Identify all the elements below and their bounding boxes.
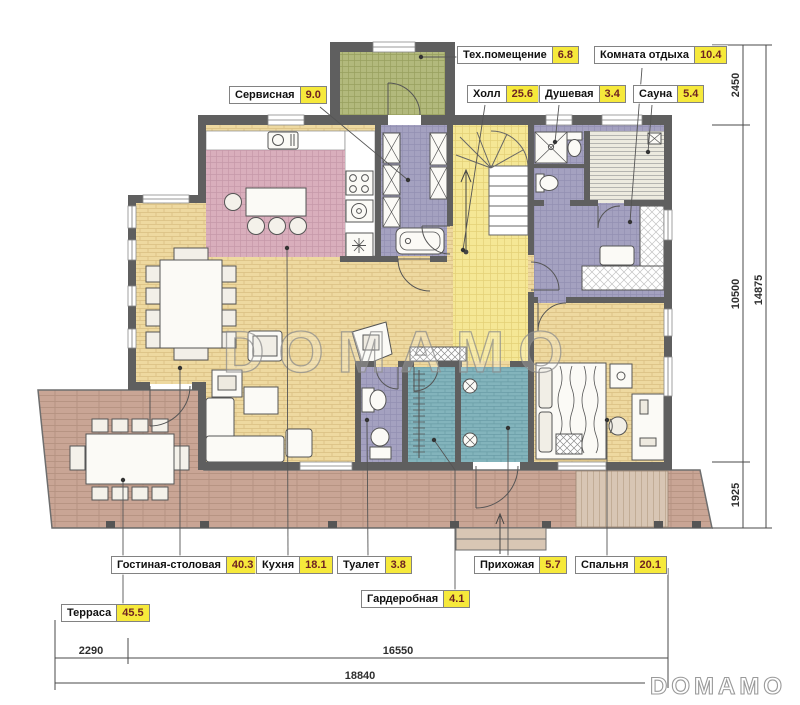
room-area: 6.8 [552,47,578,63]
sauna-heater [648,133,661,144]
label-shower: Душевая3.4 [539,85,626,103]
dim-1925: 1925 [730,483,742,507]
dim-18840: 18840 [345,670,376,682]
dim-10500: 10500 [730,279,742,310]
room-name: Холл [468,86,506,102]
dim-2450: 2450 [730,73,742,97]
shower-tray [535,132,567,163]
room-area: 20.1 [634,557,666,573]
floor-plan-page: DOMAMO 2290 16550 18840 2450 10500 1925 … [0,0,800,705]
room-area: 25.6 [506,86,538,102]
dim-16550: 16550 [383,645,414,657]
label-living: Гостиная-столовая40.3 [111,556,259,574]
room-name: Кухня [257,557,299,573]
label-wardrobe: Гардеробная4.1 [361,590,470,608]
oven-icon [346,200,373,222]
coffee-table [244,387,278,414]
label-entry: Прихожая5.7 [474,556,567,574]
room-name: Туалет [338,557,385,573]
room-name: Комната отдыха [595,47,694,63]
room-area: 18.1 [299,557,331,573]
room-area: 3.8 [385,557,411,573]
kitchen-sink-icon [346,233,373,258]
room-name: Спальня [576,557,634,573]
label-bedroom: Спальня20.1 [575,556,667,574]
label-toilet: Туалет3.8 [337,556,412,574]
room-area: 3.4 [599,86,625,102]
room-area: 45.5 [116,605,148,621]
label-service: Сервисная9.0 [229,86,327,104]
fridge-icon [268,132,298,149]
watermark-logo: DOMAMO [650,673,786,700]
label-rest: Комната отдыха10.4 [594,46,727,64]
room-name: Терраса [62,605,116,621]
room-area: 4.1 [443,591,469,607]
washbasin-shower-room [536,174,558,192]
rest-room-table [600,246,634,265]
label-terrace: Терраса45.5 [61,604,150,622]
watermark-center: DOMAMO [223,320,578,385]
room-name: Сервисная [230,87,300,103]
bathtub [396,228,444,254]
wc-shower-room [567,132,582,157]
room-area: 40.3 [226,557,258,573]
dim-14875: 14875 [753,275,765,306]
toilet-washbasin [362,388,386,412]
room-area: 5.4 [677,86,703,102]
room-area: 5.7 [539,557,565,573]
deck-light-strip [576,471,668,527]
label-kitchen: Кухня18.1 [256,556,333,574]
nightstand [610,364,632,388]
room-area: 10.4 [694,47,726,63]
label-tech: Тех.помещение6.8 [457,46,579,64]
room-name: Сауна [634,86,677,102]
room-name: Прихожая [475,557,539,573]
room-name: Гостиная-столовая [112,557,226,573]
bedroom-rug [556,434,582,454]
room-name: Душевая [540,86,599,102]
label-hall: Холл25.6 [467,85,539,103]
room-name: Гардеробная [362,591,443,607]
room-name: Тех.помещение [458,47,552,63]
dim-2290: 2290 [79,645,103,657]
stove-icon [346,171,373,195]
label-sauna: Сауна5.4 [633,85,704,103]
room-area: 9.0 [300,87,326,103]
